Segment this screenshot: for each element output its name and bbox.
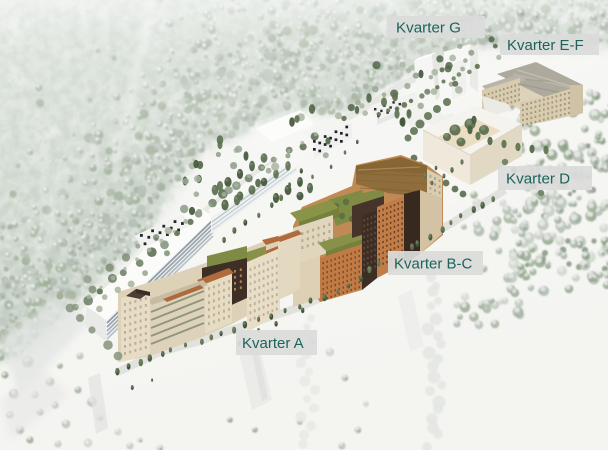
svg-text:Kvarter A: Kvarter A — [242, 335, 304, 352]
svg-text:Kvarter G: Kvarter G — [396, 20, 461, 37]
svg-text:Kvarter E-F: Kvarter E-F — [507, 37, 584, 54]
svg-text:Kvarter D: Kvarter D — [506, 171, 570, 188]
svg-text:Kvarter B-C: Kvarter B-C — [394, 255, 473, 272]
